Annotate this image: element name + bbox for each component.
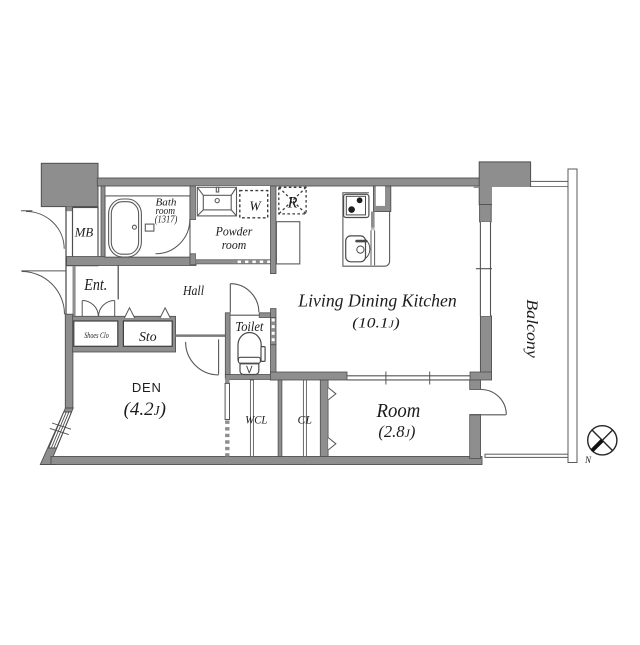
svg-text:Ent.: Ent. xyxy=(83,275,107,294)
svg-text:Balcony: Balcony xyxy=(523,299,540,359)
svg-text:(2.8J): (2.8J) xyxy=(378,422,415,441)
svg-text:Hall: Hall xyxy=(182,284,204,299)
svg-text:WCL: WCL xyxy=(245,412,267,426)
svg-text:Toilet: Toilet xyxy=(235,320,264,335)
svg-text:CL: CL xyxy=(297,412,311,426)
svg-text:MB: MB xyxy=(74,224,94,239)
svg-text:W: W xyxy=(249,198,262,213)
svg-text:DEN: DEN xyxy=(132,380,162,395)
svg-text:R: R xyxy=(287,195,298,212)
svg-text:Living Dining Kitchen: Living Dining Kitchen xyxy=(297,291,457,311)
svg-text:Sto: Sto xyxy=(139,330,157,345)
svg-text:Shoes Clo: Shoes Clo xyxy=(84,331,109,340)
svg-text:Room: Room xyxy=(376,400,421,422)
svg-text:N: N xyxy=(584,455,592,465)
svg-text:(4.2J): (4.2J) xyxy=(124,399,166,420)
svg-text:room: room xyxy=(222,237,247,252)
svg-text:(1317): (1317) xyxy=(155,215,178,226)
